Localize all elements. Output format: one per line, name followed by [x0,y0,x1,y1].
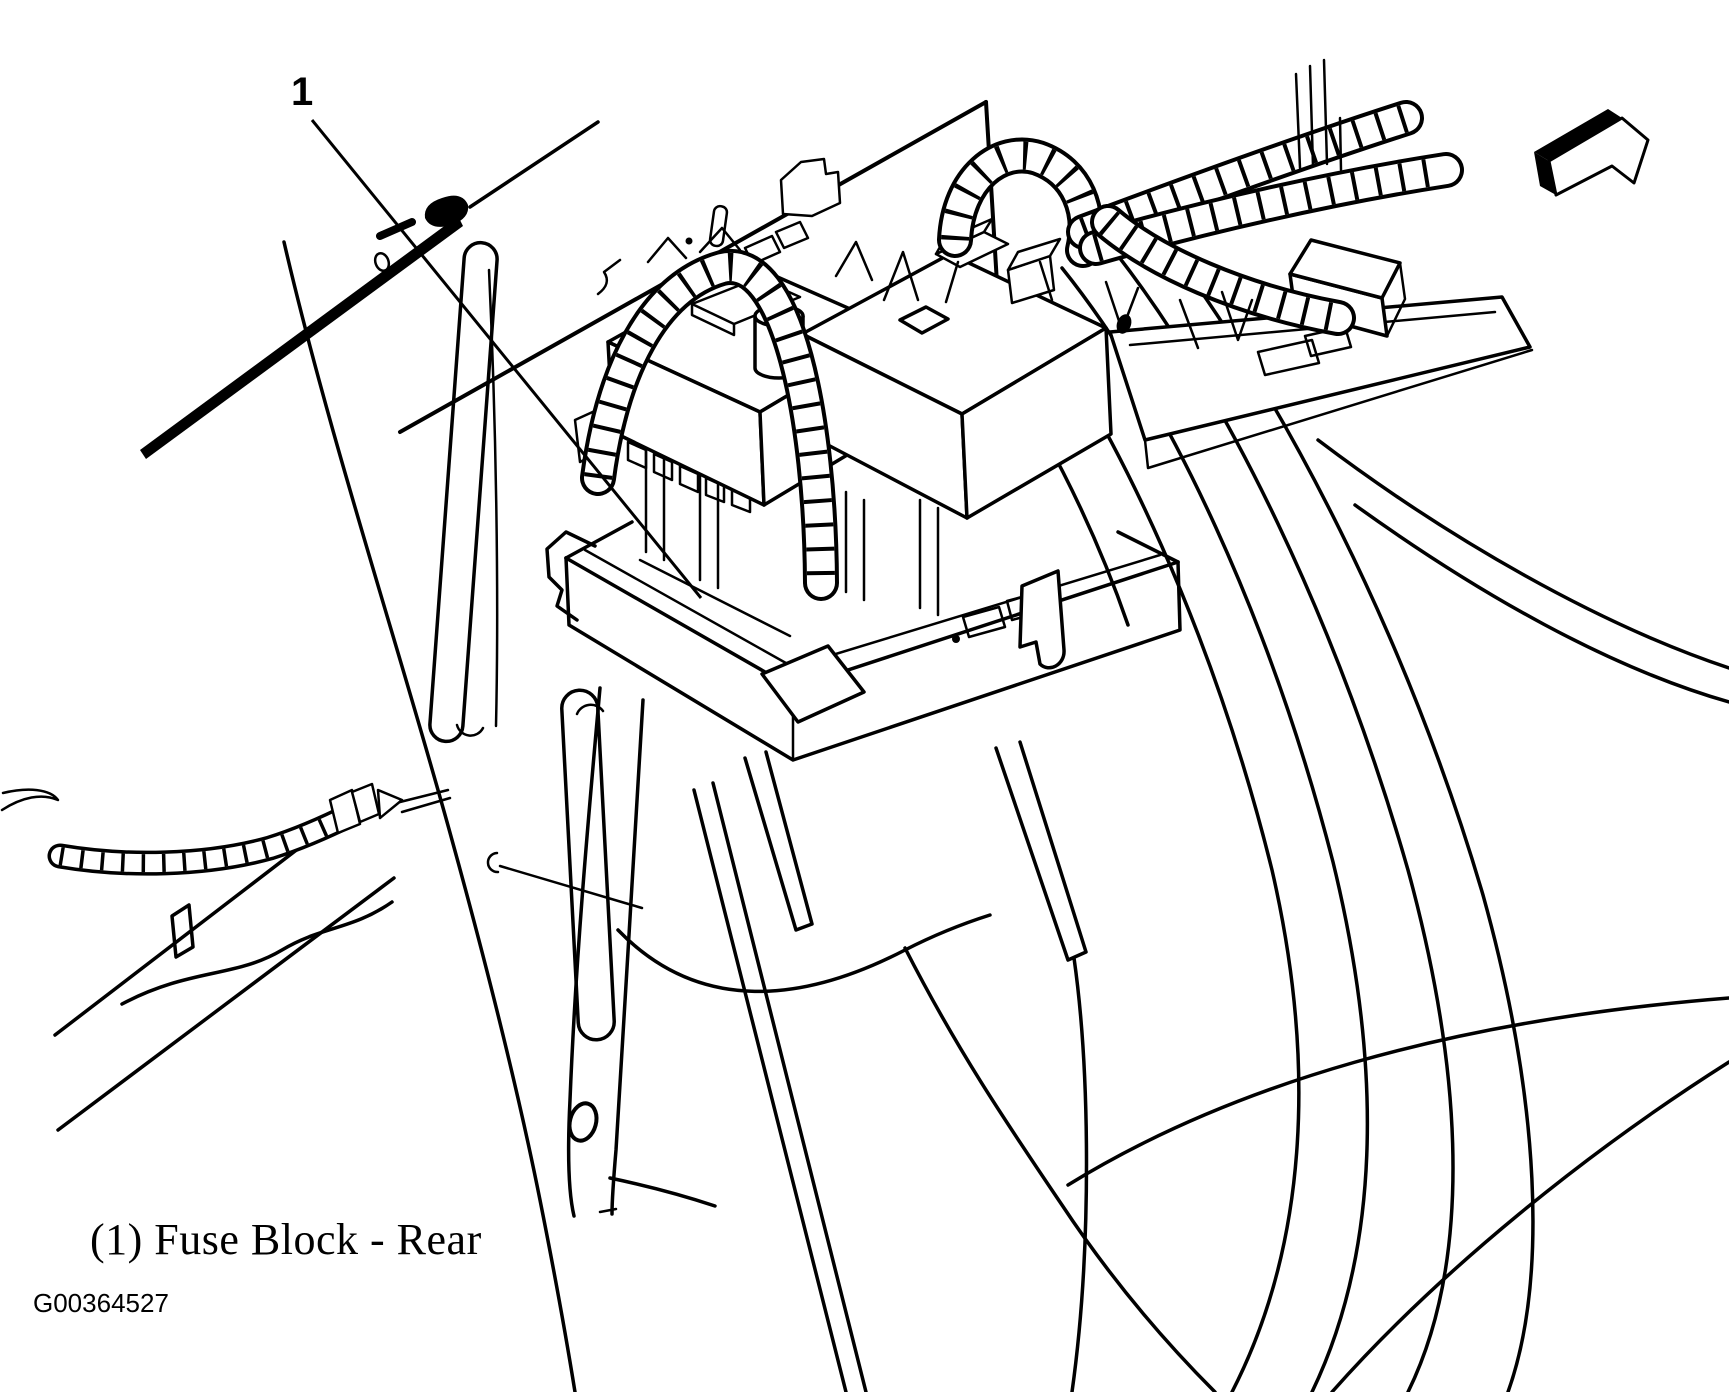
callout-number: 1 [291,72,313,112]
panel-tab [781,159,840,216]
pillar-slot-upper [429,241,499,742]
panel-zig [598,260,620,294]
floor-hook [2,790,58,810]
mounting-tray [547,436,1180,1392]
flange-line [470,122,598,207]
tray-leg-left [745,752,812,930]
figure-page: 1 (1) Fuse Block - Rear G00364527 [0,0,1729,1392]
bracket-right-edge [612,700,643,1214]
flange-hook [425,196,468,227]
technical-illustration [0,0,1729,1392]
tray-hook-latch [1020,571,1064,668]
pillar-slot-lower [561,689,615,1040]
floor-lines [2,784,450,1130]
floor-slot [172,905,193,957]
figure-id: G00364527 [33,1290,169,1316]
tray-skirt [566,558,1180,760]
direction-arrow-icon [1534,109,1648,195]
figure-caption: (1) Fuse Block - Rear [90,1218,482,1262]
tray-rim-inner [585,550,1160,667]
harness-connector-tip [378,790,402,818]
clip-mark [488,853,498,872]
tray-rivet [952,635,960,643]
tray-leg-right [996,742,1086,960]
panel-dot [686,238,693,245]
tray-back-edges [566,522,1178,562]
floor-seam-2 [58,878,394,1130]
